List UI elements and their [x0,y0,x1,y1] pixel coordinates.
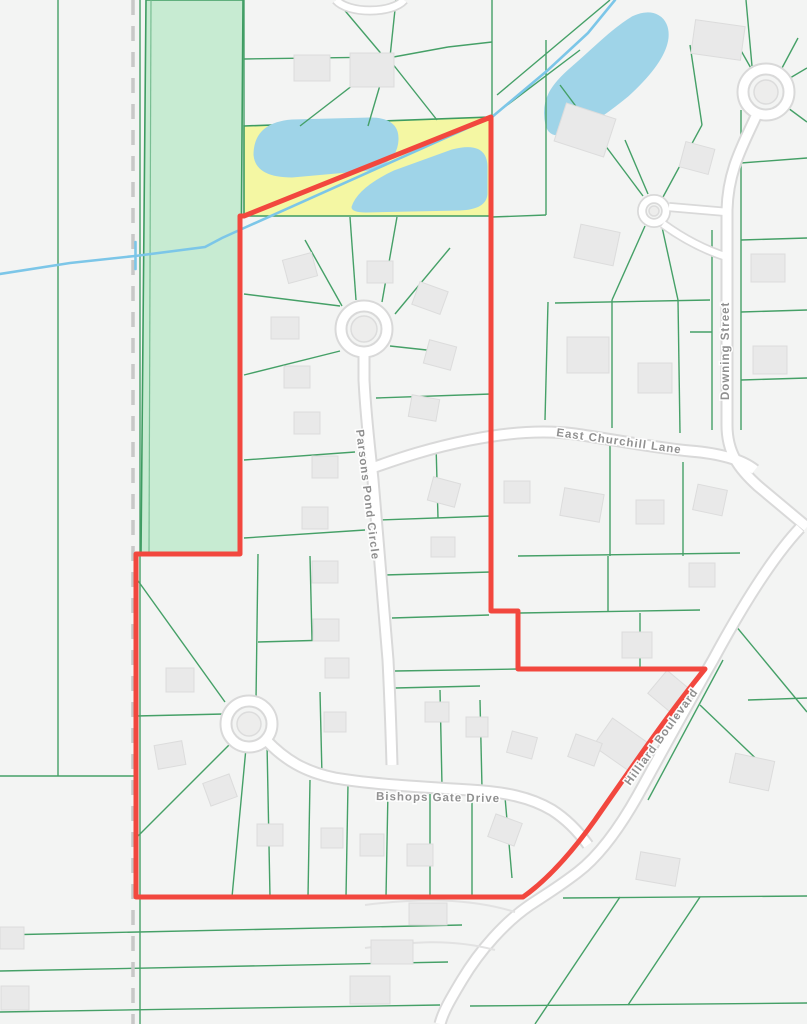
map-canvas[interactable]: East Churchill Lane Downing Street Parso… [0,0,807,1024]
map-viewport[interactable]: East Churchill Lane Downing Street Parso… [0,0,807,1024]
culdesac-island [237,712,261,736]
street-label-downing-street: Downing Street [720,302,732,400]
culdesac-island [351,316,377,342]
street-label-bishops-gate-drive: Bishops Gate Drive [376,791,500,805]
green-space-area [141,0,243,553]
culdesac-island [649,206,659,216]
culdesac-island [754,80,778,104]
